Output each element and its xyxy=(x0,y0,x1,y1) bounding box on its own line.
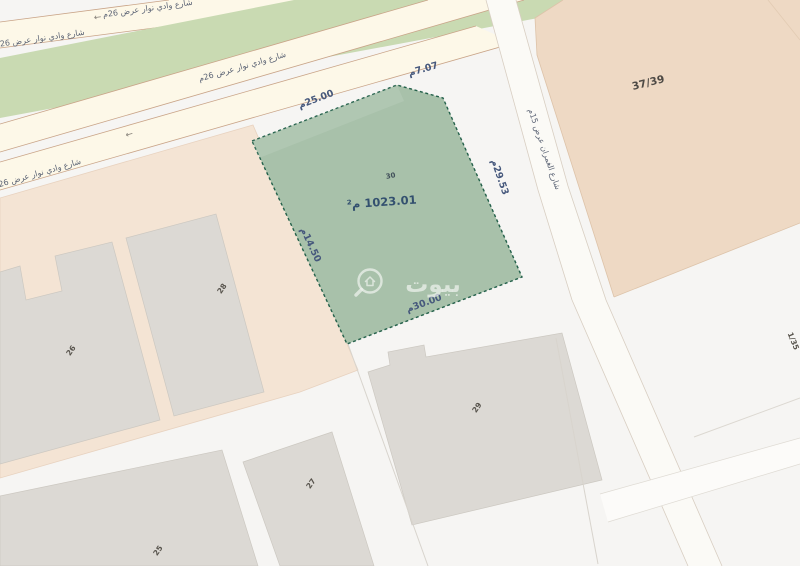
plot-map: شارع وادي نوار عرض 26م شارع وادي نوار عر… xyxy=(0,0,800,566)
map-canvas[interactable]: شارع وادي نوار عرض 26م شارع وادي نوار عر… xyxy=(0,0,800,566)
watermark-brand-text: بيوت xyxy=(405,272,461,298)
subject-parcel-number: 30 xyxy=(385,171,396,181)
